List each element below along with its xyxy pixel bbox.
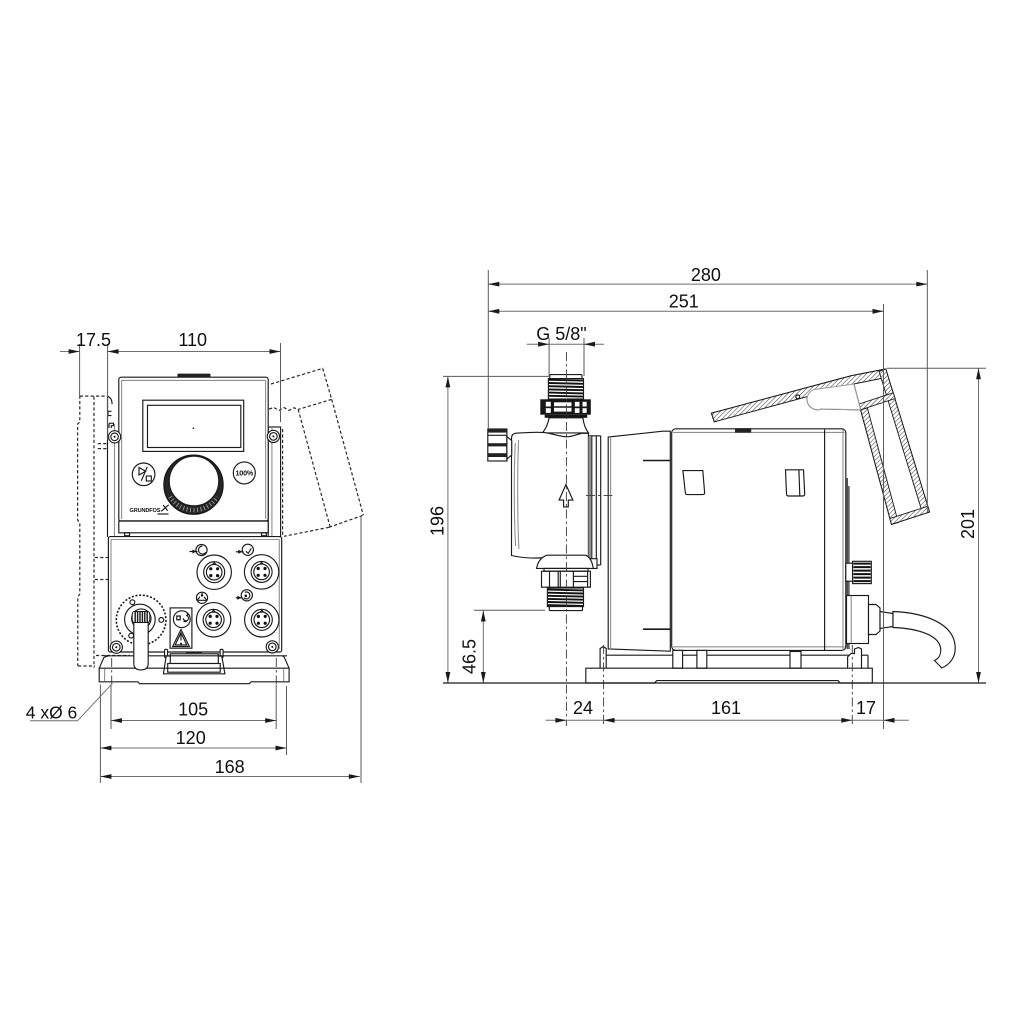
svg-text:105: 105 (178, 700, 208, 720)
svg-text:100%: 100% (236, 469, 254, 478)
svg-text:168: 168 (215, 757, 245, 777)
svg-text:17.5: 17.5 (76, 330, 111, 350)
svg-text:280: 280 (691, 265, 721, 285)
svg-text:G 5/8": G 5/8" (536, 324, 586, 344)
svg-text:4 xØ 6: 4 xØ 6 (26, 702, 78, 722)
svg-text:120: 120 (176, 728, 206, 748)
svg-text:161: 161 (711, 698, 741, 718)
svg-text:GRUNDFOS: GRUNDFOS (130, 508, 161, 514)
svg-text:24: 24 (573, 698, 593, 718)
svg-text:17: 17 (856, 698, 876, 718)
svg-text:196: 196 (428, 506, 448, 536)
svg-text:201: 201 (958, 509, 978, 539)
svg-text:110: 110 (178, 330, 207, 350)
svg-text:46.5: 46.5 (460, 639, 480, 674)
svg-text:251: 251 (669, 291, 699, 311)
